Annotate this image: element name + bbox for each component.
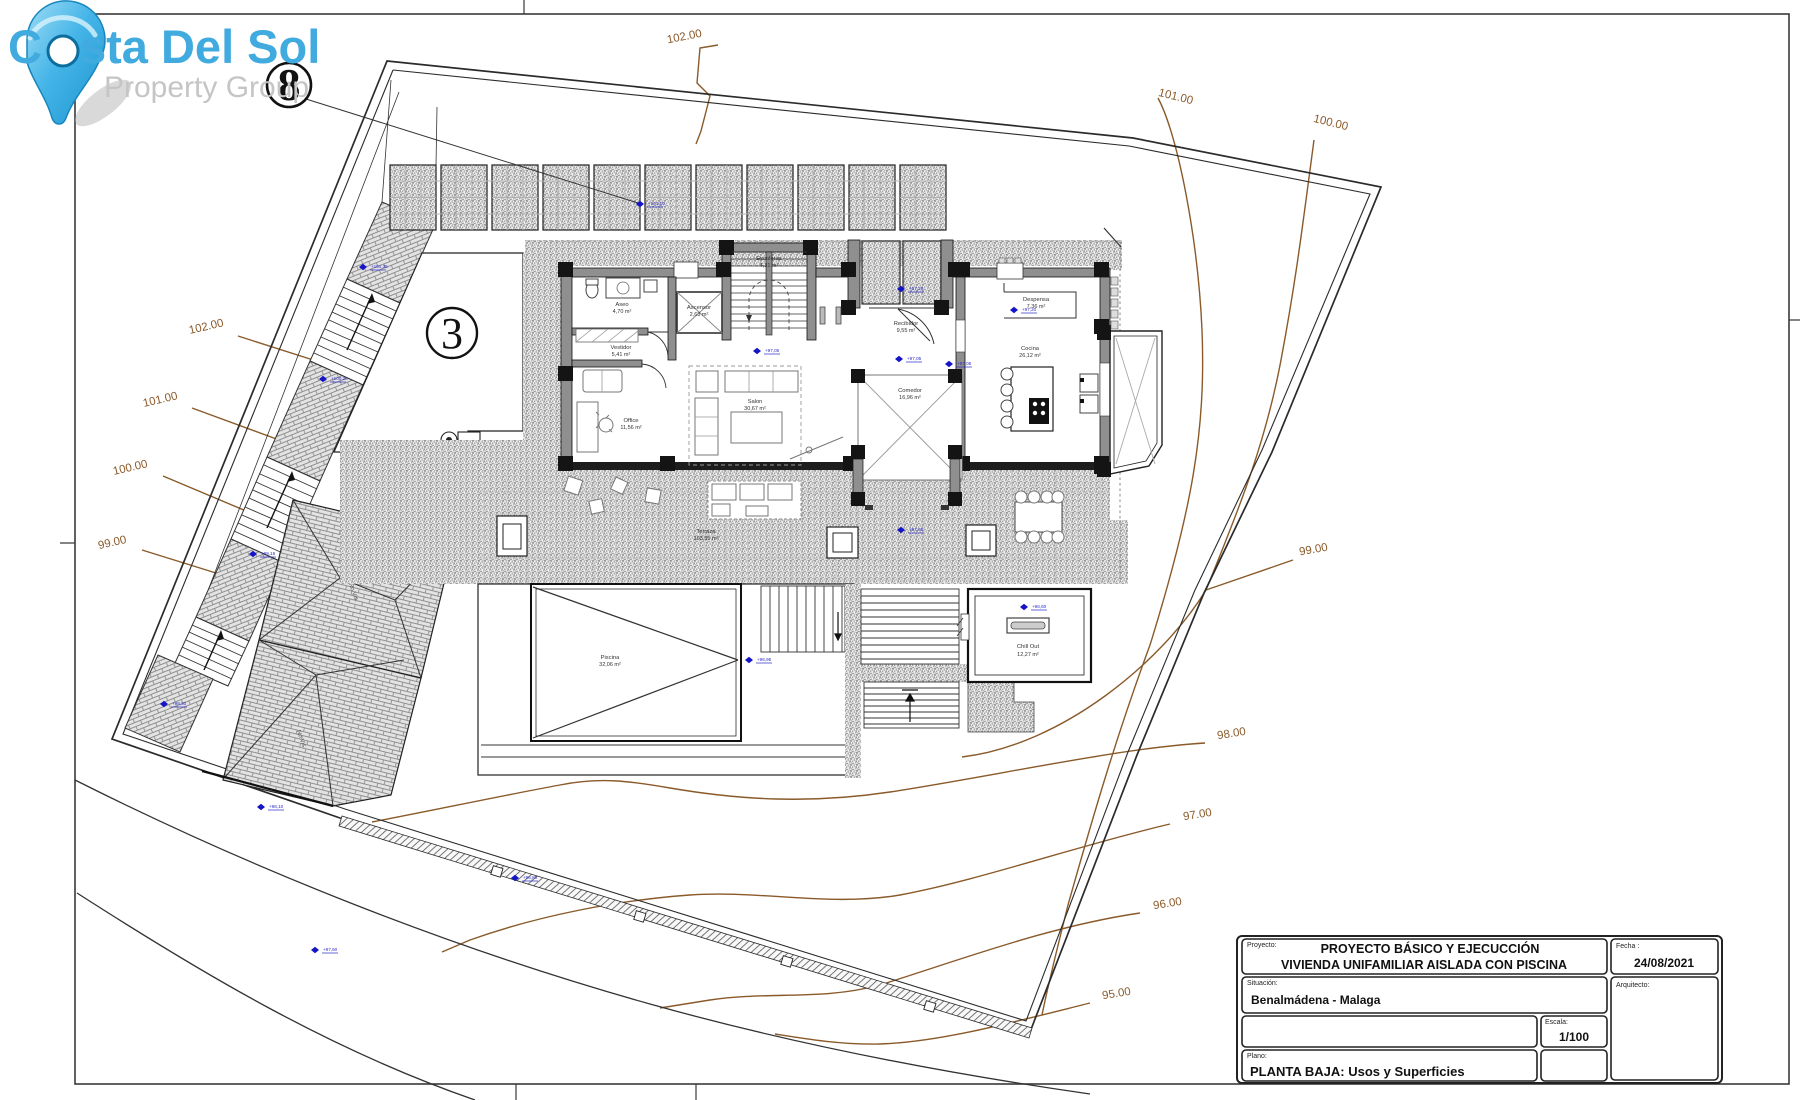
svg-text:3: 3 xyxy=(441,309,463,358)
svg-text:24/08/2021: 24/08/2021 xyxy=(1634,956,1694,970)
svg-text:VIVIENDA UNIFAMILIAR AISLADA C: VIVIENDA UNIFAMILIAR AISLADA CON PISCINA xyxy=(1281,958,1567,972)
svg-text:26,12 m²: 26,12 m² xyxy=(1019,353,1041,359)
svg-text:Escaleras: Escaleras xyxy=(756,256,782,262)
svg-text:Situación:: Situación: xyxy=(1247,980,1278,987)
svg-text:Benalmádena - Malaga: Benalmádena - Malaga xyxy=(1251,993,1381,1007)
svg-text:C: C xyxy=(8,20,42,73)
svg-text:4,70 m²: 4,70 m² xyxy=(613,309,632,315)
svg-text:Proyecto:: Proyecto: xyxy=(1247,942,1277,949)
svg-text:Office: Office xyxy=(623,418,638,424)
svg-text:Recibidor: Recibidor xyxy=(894,321,919,327)
svg-text:Despensa: Despensa xyxy=(1023,297,1050,303)
svg-text:+96,95: +96,95 xyxy=(757,657,772,662)
svg-text:sta Del Sol: sta Del Sol xyxy=(80,20,320,73)
svg-text:+98,30: +98,30 xyxy=(172,701,187,706)
svg-text:+97,60: +97,60 xyxy=(323,947,338,952)
svg-text:+98,10: +98,10 xyxy=(269,804,284,809)
svg-text:+97,20: +97,20 xyxy=(909,286,924,291)
svg-text:Cocina: Cocina xyxy=(1021,346,1040,352)
svg-text:Vestidor: Vestidor xyxy=(611,345,632,351)
svg-text:Piscina: Piscina xyxy=(601,655,620,661)
svg-text:+100,20: +100,20 xyxy=(331,376,348,381)
svg-text:5,41 m²: 5,41 m² xyxy=(612,352,631,358)
svg-text:11,56 m²: 11,56 m² xyxy=(620,425,641,431)
svg-text:PLANTA BAJA: Usos y Superficie: PLANTA BAJA: Usos y Superficies xyxy=(1250,1064,1465,1079)
svg-text:PROYECTO BÁSICO Y EJECUCCIÓN: PROYECTO BÁSICO Y EJECUCCIÓN xyxy=(1321,941,1540,956)
svg-text:Ascensor: Ascensor xyxy=(687,305,711,311)
svg-text:Salon: Salon xyxy=(748,399,763,405)
svg-text:Fecha :: Fecha : xyxy=(1616,943,1639,950)
svg-text:+97,05: +97,05 xyxy=(907,356,922,361)
svg-text:Plano:: Plano: xyxy=(1247,1053,1267,1060)
svg-text:9,55 m²: 9,55 m² xyxy=(897,328,916,334)
svg-text:Comedor: Comedor xyxy=(898,388,922,394)
svg-text:+96,80: +96,80 xyxy=(523,875,538,880)
svg-text:+99,15: +99,15 xyxy=(261,551,276,556)
svg-text:4,31 m²: 4,31 m² xyxy=(760,263,779,269)
svg-text:+97,05: +97,05 xyxy=(765,348,780,353)
svg-text:+101,10: +101,10 xyxy=(648,201,665,206)
svg-text:103,55 m²: 103,55 m² xyxy=(694,536,719,542)
svg-text:2,63 m²: 2,63 m² xyxy=(690,312,709,318)
svg-text:+101,35: +101,35 xyxy=(371,264,388,269)
svg-text:Arquitecto:: Arquitecto: xyxy=(1616,982,1650,989)
svg-text:Aseo: Aseo xyxy=(615,302,628,308)
svg-text:1/100: 1/100 xyxy=(1559,1030,1589,1044)
svg-text:+97,05: +97,05 xyxy=(957,361,972,366)
svg-text:30,67 m²: 30,67 m² xyxy=(744,406,766,412)
svg-text:Chill Out: Chill Out xyxy=(1017,644,1040,650)
svg-text:+97,05: +97,05 xyxy=(909,527,924,532)
svg-text:16,96 m²: 16,96 m² xyxy=(899,395,921,401)
svg-text:+96,60: +96,60 xyxy=(1032,604,1047,609)
svg-text:Terraza: Terraza xyxy=(696,529,716,535)
svg-text:12,27 m²: 12,27 m² xyxy=(1017,652,1039,658)
svg-text:Property Group: Property Group xyxy=(104,71,309,104)
svg-text:32,06 m²: 32,06 m² xyxy=(599,662,621,668)
svg-text:+97,20: +97,20 xyxy=(1022,307,1037,312)
svg-text:Escala:: Escala: xyxy=(1545,1019,1568,1026)
